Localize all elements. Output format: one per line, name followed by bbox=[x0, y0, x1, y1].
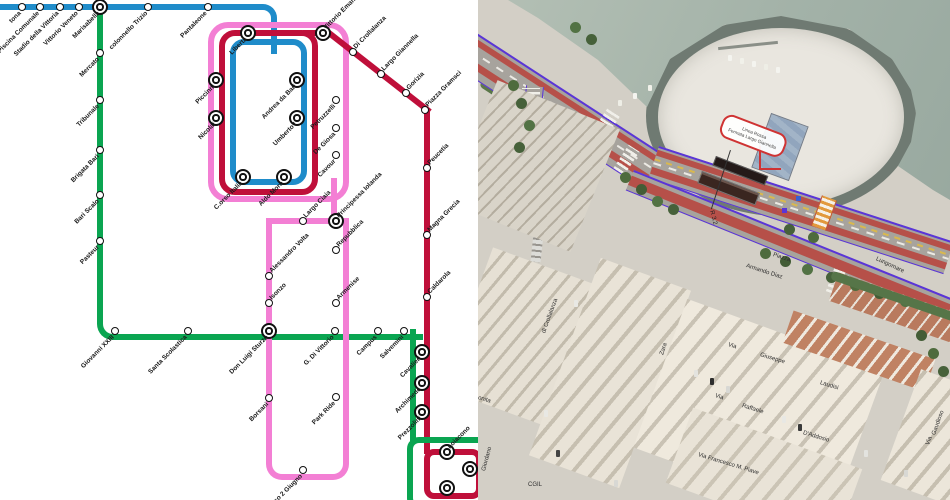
station-label: Piazza Gramsci bbox=[424, 70, 463, 109]
cad-marker bbox=[796, 196, 801, 201]
station-label: Caldarola bbox=[426, 269, 453, 296]
transit-line-diagram: tonaPiscina ComunaleStadio della Vittori… bbox=[0, 0, 478, 500]
station-dot bbox=[204, 3, 212, 11]
satellite-plan: R 3.2 Linea Rossa Fermata Largo Giannell… bbox=[478, 0, 950, 500]
station-dot bbox=[374, 327, 382, 335]
street-label: Giordano bbox=[481, 446, 493, 471]
station-dot bbox=[96, 191, 104, 199]
station-label: Don Luigi Sturzo bbox=[228, 334, 270, 376]
station-label: Peucetia bbox=[426, 142, 451, 167]
station-dot bbox=[75, 3, 83, 11]
trees bbox=[508, 80, 519, 91]
street-label: CGIL bbox=[528, 482, 542, 488]
station-dot bbox=[96, 237, 104, 245]
station-dot bbox=[332, 393, 340, 401]
station-dot bbox=[96, 146, 104, 154]
station-dot bbox=[332, 124, 340, 132]
station-dot bbox=[331, 327, 339, 335]
station-dot bbox=[18, 3, 26, 11]
city-block bbox=[478, 80, 620, 252]
station-dot bbox=[332, 96, 340, 104]
station-label: Magna Grecia bbox=[426, 198, 462, 234]
station-dot bbox=[184, 327, 192, 335]
cad-marker bbox=[782, 208, 787, 213]
station-label: Giovanni XXIII bbox=[80, 334, 117, 371]
station-dot bbox=[111, 327, 119, 335]
station-dot bbox=[144, 3, 152, 11]
station-dot bbox=[400, 327, 408, 335]
parked-cars bbox=[574, 300, 578, 307]
callout-leader-line bbox=[759, 168, 781, 170]
station-dot bbox=[56, 3, 64, 11]
station-dot bbox=[96, 96, 104, 104]
green-line-main bbox=[97, 4, 423, 340]
screenshot-page: tonaPiscina ComunaleStadio della Vittori… bbox=[0, 0, 950, 500]
street-label: Armando Diaz bbox=[745, 263, 783, 280]
station-dot bbox=[96, 49, 104, 57]
city-block bbox=[881, 369, 950, 500]
station-dot bbox=[36, 3, 44, 11]
station-dot bbox=[439, 480, 455, 496]
station-dot bbox=[265, 394, 273, 402]
moored-boats bbox=[728, 55, 732, 61]
station-label: Santa Scolastica bbox=[147, 334, 189, 376]
station-dot bbox=[462, 461, 478, 477]
station-dot bbox=[299, 466, 307, 474]
